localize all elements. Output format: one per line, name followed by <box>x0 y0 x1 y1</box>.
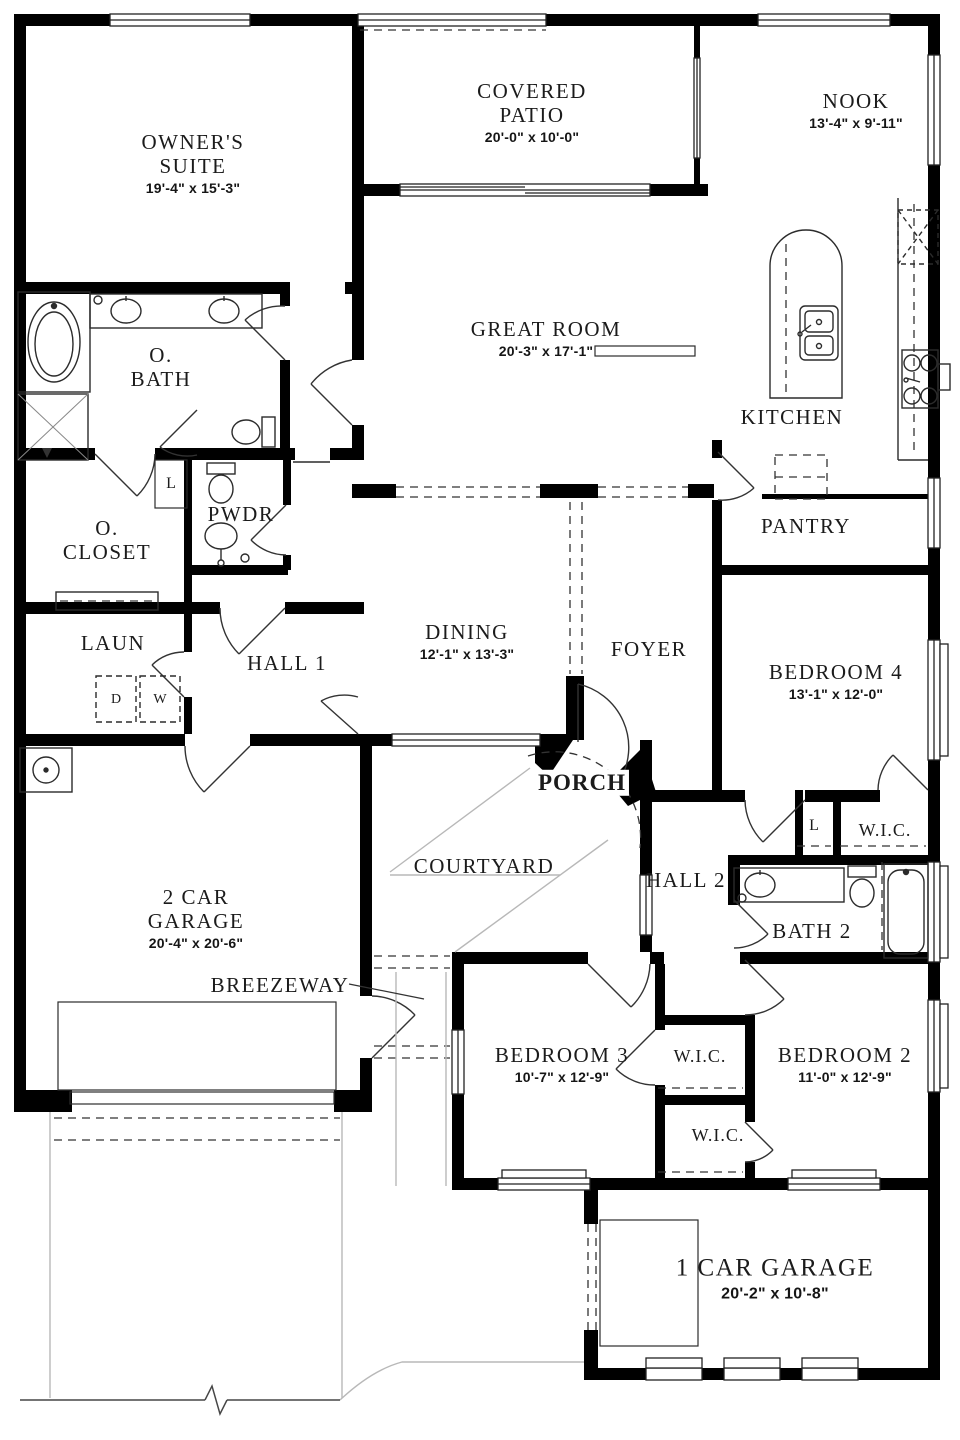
wic2-door <box>745 1122 773 1162</box>
kitchen-sink-icon <box>798 306 838 360</box>
room-label-courtyard: COURTYARD <box>414 854 555 878</box>
hall1-door <box>220 608 285 654</box>
bath2-tub-icon <box>884 864 928 958</box>
driveway-curve <box>340 1362 584 1400</box>
room-label-bedroom-2: BEDROOM 2 11'-0" x 12'-9" <box>778 1043 912 1085</box>
room-label-o-bath: O. BATH <box>116 343 206 391</box>
garage-breezeway-door <box>372 996 415 1058</box>
front-door <box>578 684 629 780</box>
room-label-great-room: GREAT ROOM 20'-3" x 17'-1" <box>471 317 622 359</box>
laundry-door <box>152 652 184 697</box>
room-label-bedroom-4: BEDROOM 4 13'-1" x 12'-0" <box>769 660 903 702</box>
double-vanity-icon <box>90 294 262 328</box>
laundry-garage-door <box>185 746 250 792</box>
owner-bath-door <box>245 306 285 360</box>
water-heater-icon <box>20 748 72 792</box>
window-sill <box>940 1004 948 1088</box>
linen-closet-label-2: L <box>809 817 819 835</box>
window-sill <box>940 866 948 958</box>
dryer-label: D <box>111 692 121 708</box>
room-label-laun: LAUN <box>81 631 145 655</box>
garage2-car-pad <box>58 1002 336 1090</box>
bedroom2-door <box>745 960 784 1015</box>
interior-walls <box>14 26 940 1190</box>
window-sill <box>940 644 948 756</box>
powder-toilet-icon <box>207 463 235 503</box>
room-label-covered-patio: COVERED PATIO 20'-0" x 10'-0" <box>462 79 602 145</box>
room-label-pantry: PANTRY <box>761 514 851 538</box>
room-label-o-closet: O. CLOSET <box>52 516 162 564</box>
owner-closet-door <box>95 454 155 496</box>
washer-label: W <box>153 692 166 708</box>
floor-plan-drawing <box>0 0 960 1440</box>
room-label-hall-2: HALL 2 <box>646 868 726 892</box>
room-label-hall-1: HALL 1 <box>247 651 327 675</box>
room-label-bedroom-3: BEDROOM 3 10'-7" x 12'-9" <box>495 1043 629 1085</box>
owner-suite-door <box>311 360 352 425</box>
break-symbol <box>205 1386 227 1414</box>
bathtub-icon <box>18 292 90 392</box>
wic-bed4-door <box>878 755 928 790</box>
room-label-foyer: FOYER <box>611 637 687 661</box>
property-line <box>20 1386 340 1414</box>
cooktop-icon <box>902 350 950 408</box>
room-label-nook: NOOK 13'-4" x 9'-11" <box>809 89 903 131</box>
toilet-icon <box>232 417 275 447</box>
pantry-door <box>718 452 754 500</box>
room-label-2-car-garage: 2 CAR GARAGE 20'-4" x 20'-6" <box>131 885 261 951</box>
room-label-porch: PORCH <box>535 770 629 796</box>
room-label-dining: DINING 12'-1" x 13'-3" <box>420 620 515 662</box>
linen-closet-label-1: L <box>166 475 176 493</box>
bath2-toilet-icon <box>848 866 876 907</box>
room-label-wic-2: W.I.C. <box>692 1126 745 1146</box>
bath2-vanity-icon <box>734 868 844 902</box>
washer-dryer-icons <box>96 676 180 722</box>
room-label-bath-2: BATH 2 <box>772 919 852 943</box>
kitchen-counter <box>898 198 928 460</box>
room-label-1-car-garage: 1 CAR GARAGE 20'-2" x 10'-8" <box>676 1255 875 1304</box>
pedestal-sink-icon <box>205 523 249 566</box>
kitchen-island-icon <box>770 230 842 398</box>
hall1-dining-door <box>321 695 358 734</box>
room-label-kitchen: KITCHEN <box>741 405 844 429</box>
room-label-pwdr: PWDR <box>208 502 275 526</box>
window-sill <box>792 1170 876 1178</box>
room-label-breezeway: BREEZEWAY <box>211 973 350 997</box>
bedroom3-door <box>588 964 650 1007</box>
garage2-door <box>70 1092 334 1104</box>
room-label-wic-1: W.I.C. <box>674 1047 727 1067</box>
room-label-wic-bed4: W.I.C. <box>859 821 912 841</box>
bath2-door <box>734 900 768 948</box>
window-sill <box>502 1170 586 1178</box>
room-label-owners-suite: OWNER'S SUITE 19'-4" x 15'-3" <box>118 130 268 196</box>
floor-plan: OWNER'S SUITE 19'-4" x 15'-3" COVERED PA… <box>0 0 960 1440</box>
